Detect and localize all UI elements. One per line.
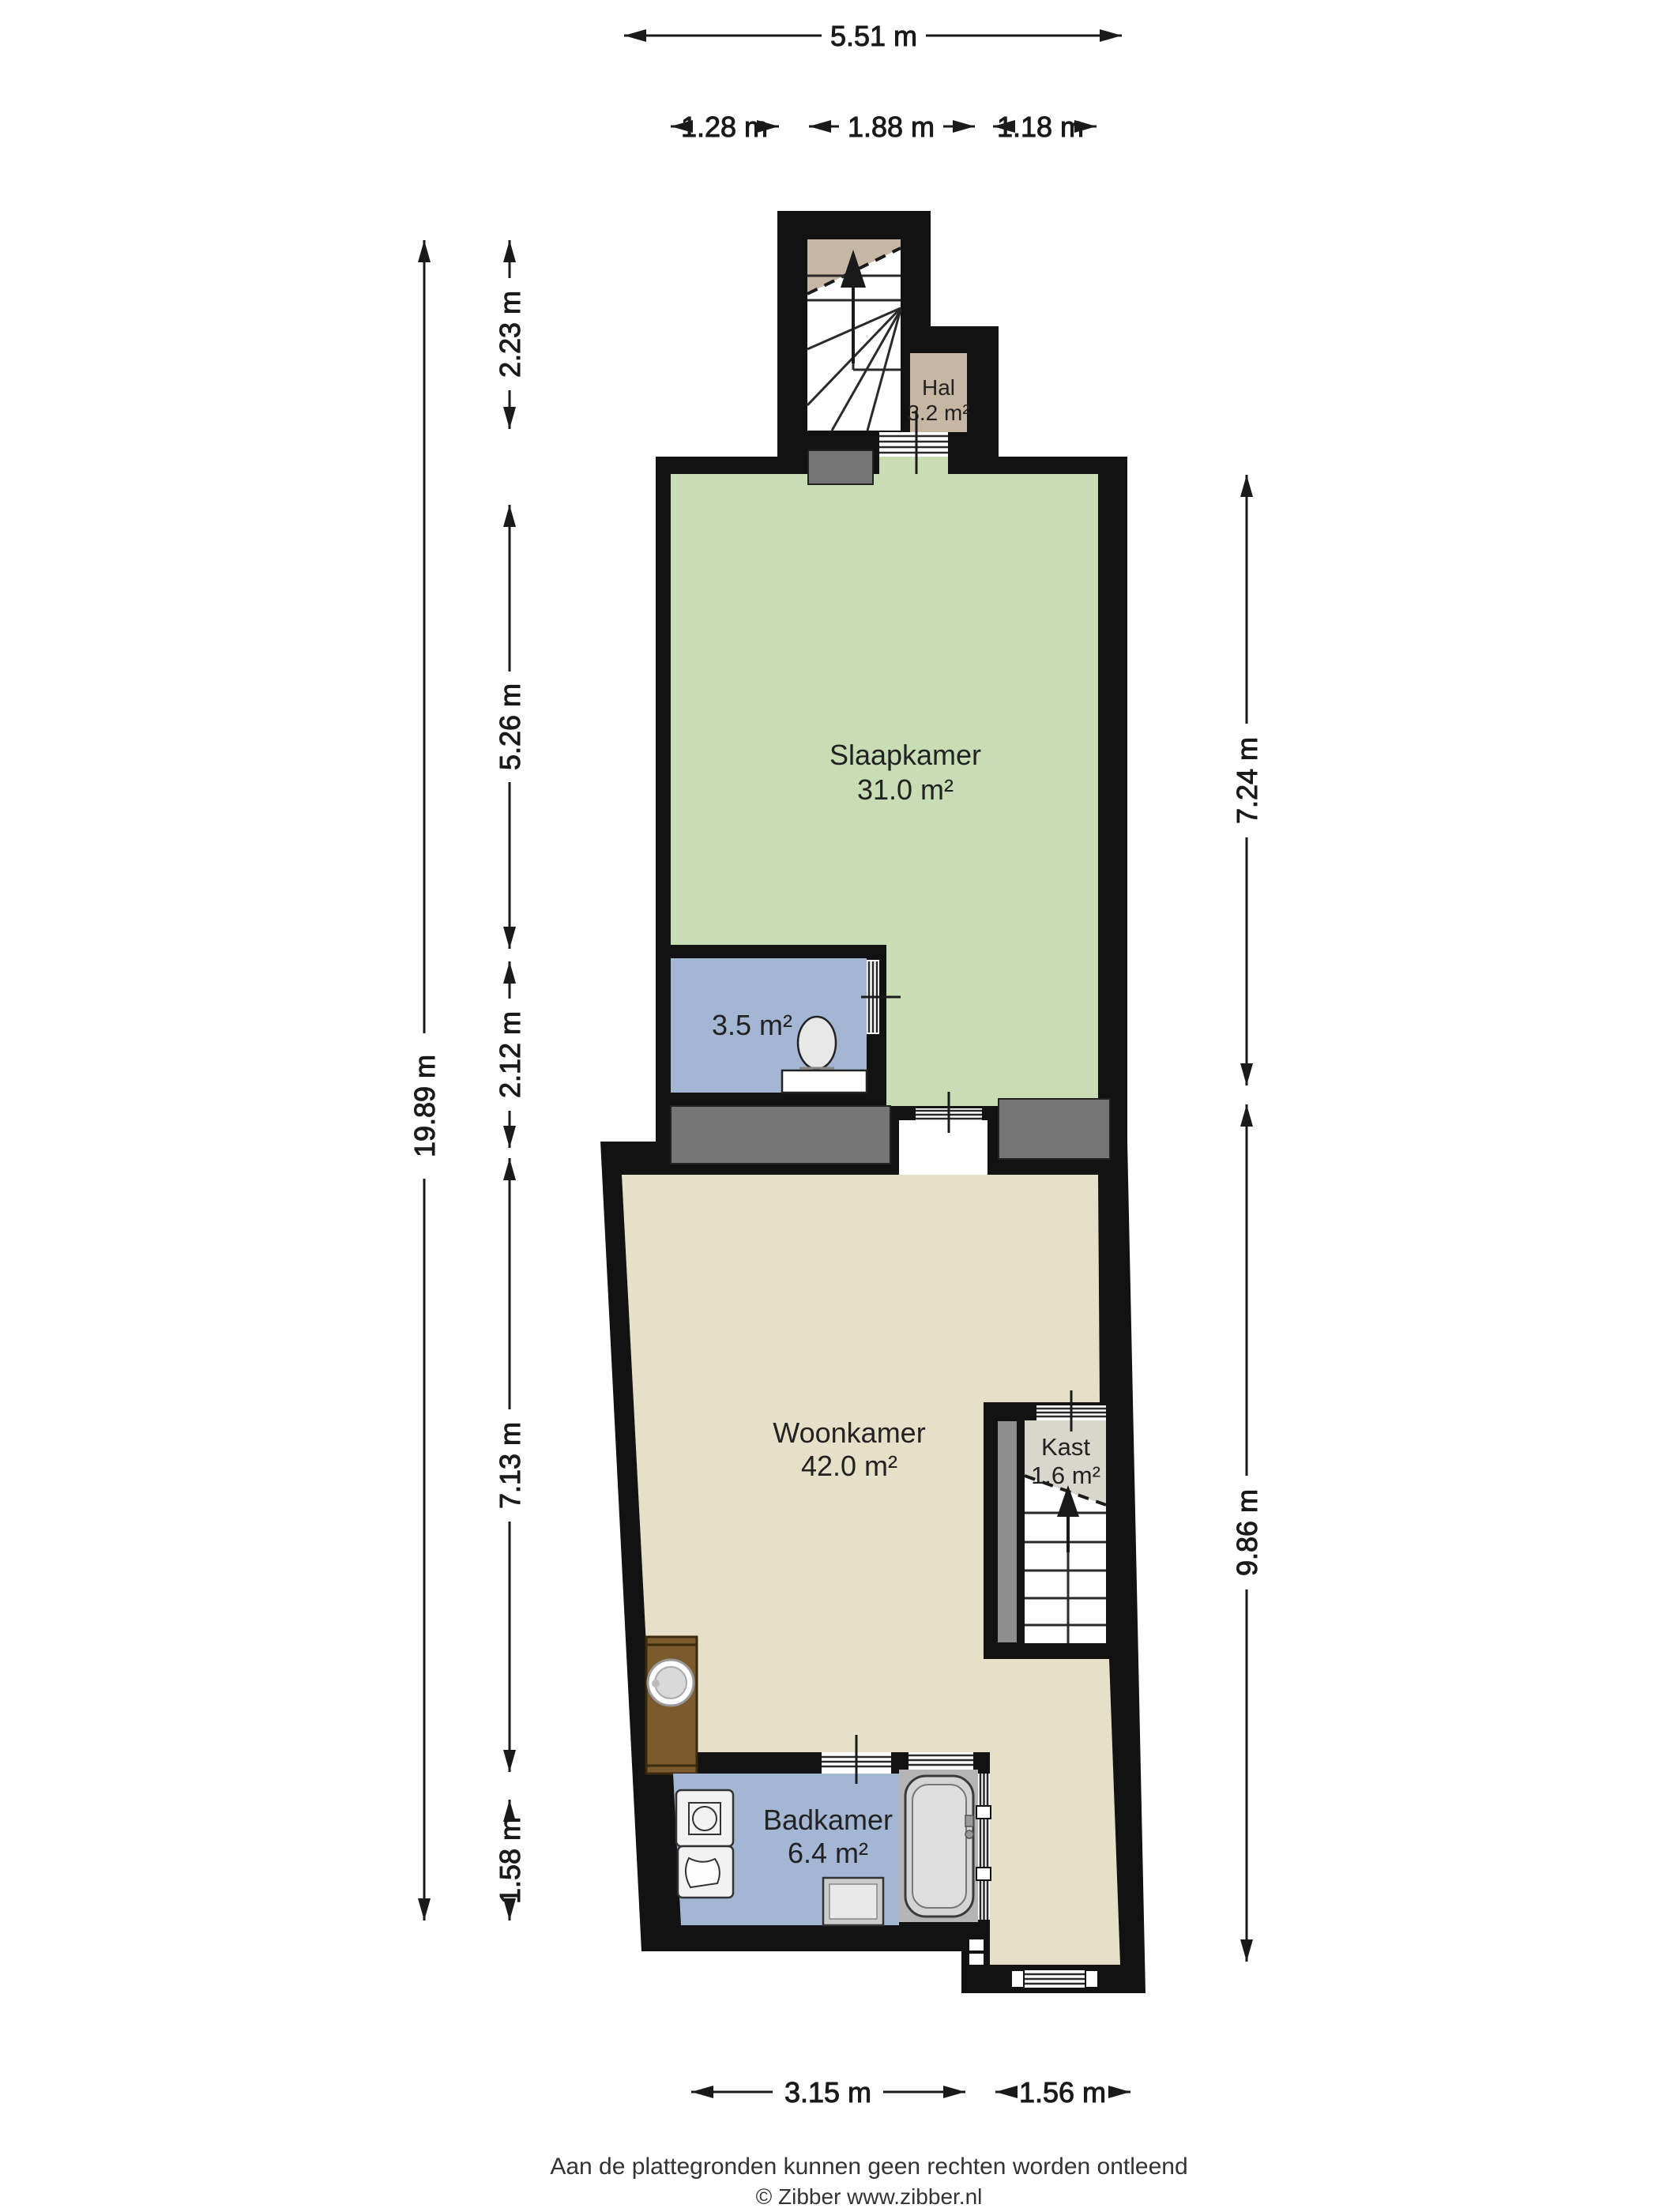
- kast-partition: [997, 1420, 1018, 1643]
- kast-name: Kast: [1041, 1433, 1090, 1461]
- dim-left-seg-3: 2.12 m: [494, 961, 526, 1148]
- svg-text:9.86 m: 9.86 m: [1231, 1489, 1263, 1576]
- kitchen-sink-icon: [648, 1660, 694, 1706]
- kitchen-counter: [646, 1637, 697, 1774]
- dim-left-seg-2: 5.26 m: [494, 505, 526, 949]
- bathroom-sink-cabinet-icon: [823, 1878, 883, 1925]
- dim-bottom-seg-1: 3.15 m: [691, 2076, 965, 2109]
- front-window: [1011, 1970, 1098, 1988]
- toilet-area: 3.5 m²: [712, 1009, 792, 1041]
- toilet-fixture-icon: [798, 1017, 836, 1069]
- svg-text:2.12 m: 2.12 m: [494, 1011, 526, 1098]
- dim-left-seg-4: 7.13 m: [494, 1158, 526, 1772]
- svg-text:1.58 m: 1.58 m: [494, 1817, 526, 1904]
- badkamer-bottom-windows: [969, 1939, 984, 1966]
- footer-copyright: © Zibber www.zibber.nl: [756, 2184, 983, 2209]
- chimney-mid-right: [999, 1099, 1110, 1159]
- badkamer-name: Badkamer: [763, 1804, 893, 1836]
- dim-bottom-seg-2: 1.56 m: [995, 2076, 1130, 2109]
- dim-top-seg-3: 1.18 m: [993, 111, 1097, 143]
- toilet-shelf: [782, 1070, 867, 1093]
- stairwell-top: [807, 239, 901, 431]
- bathtub-icon: [905, 1776, 973, 1917]
- svg-text:2.23 m: 2.23 m: [494, 291, 526, 378]
- svg-text:1.28 m: 1.28 m: [681, 111, 768, 143]
- svg-text:19.89 m: 19.89 m: [408, 1055, 441, 1157]
- hal-name: Hal: [922, 375, 955, 400]
- dim-left-total: 19.89 m: [408, 240, 441, 1920]
- kast-area: 1.6 m²: [1031, 1461, 1100, 1489]
- badkamer-area: 6.4 m²: [788, 1837, 868, 1869]
- hal-threshold: [879, 432, 948, 457]
- room-kast: Kast 1.6 m²: [997, 1390, 1106, 1643]
- dim-top-seg-1: 1.28 m: [671, 111, 779, 143]
- dim-top-total: 5.51 m: [624, 20, 1122, 52]
- dim-left-seg-1: 2.23 m: [494, 240, 526, 429]
- woonkamer-area: 42.0 m²: [801, 1450, 897, 1482]
- laundry-basket-icon: [678, 1846, 733, 1898]
- chimney-mid-left: [671, 1106, 890, 1164]
- woonkamer-name: Woonkamer: [773, 1416, 925, 1449]
- floorplan-canvas: Hal 3.2 m² Slaapkamer 31.0 m² 3.5 m²: [0, 0, 1659, 2212]
- svg-text:5.51 m: 5.51 m: [830, 20, 917, 52]
- dim-right-seg-1: 7.24 m: [1231, 475, 1263, 1085]
- floorplan-page: Hal 3.2 m² Slaapkamer 31.0 m² 3.5 m²: [0, 0, 1659, 2212]
- svg-text:5.26 m: 5.26 m: [494, 683, 526, 770]
- svg-text:1.88 m: 1.88 m: [848, 111, 935, 143]
- dim-left-seg-5: 1.58 m: [494, 1800, 526, 1920]
- chimney-top: [808, 450, 873, 484]
- room-toilet: 3.5 m²: [671, 958, 901, 1093]
- svg-text:1.18 m: 1.18 m: [997, 111, 1084, 143]
- slaapkamer-floor-tongue: [879, 457, 948, 476]
- dim-top-seg-2: 1.88 m: [809, 111, 975, 143]
- dim-right-seg-2: 9.86 m: [1231, 1104, 1263, 1962]
- svg-text:1.56 m: 1.56 m: [1019, 2076, 1106, 2109]
- badkamer-top-window: [908, 1752, 973, 1770]
- svg-text:3.15 m: 3.15 m: [784, 2076, 871, 2109]
- washing-machine-icon: [676, 1790, 733, 1846]
- svg-text:7.24 m: 7.24 m: [1231, 737, 1263, 824]
- svg-text:7.13 m: 7.13 m: [494, 1422, 526, 1509]
- slaapkamer-area: 31.0 m²: [857, 773, 954, 806]
- footer-disclaimer: Aan de plattegronden kunnen geen rechten…: [550, 2154, 1187, 2180]
- badkamer-right-window: [976, 1774, 991, 1920]
- footer: Aan de plattegronden kunnen geen rechten…: [550, 2154, 1187, 2209]
- slaapkamer-name: Slaapkamer: [829, 739, 981, 771]
